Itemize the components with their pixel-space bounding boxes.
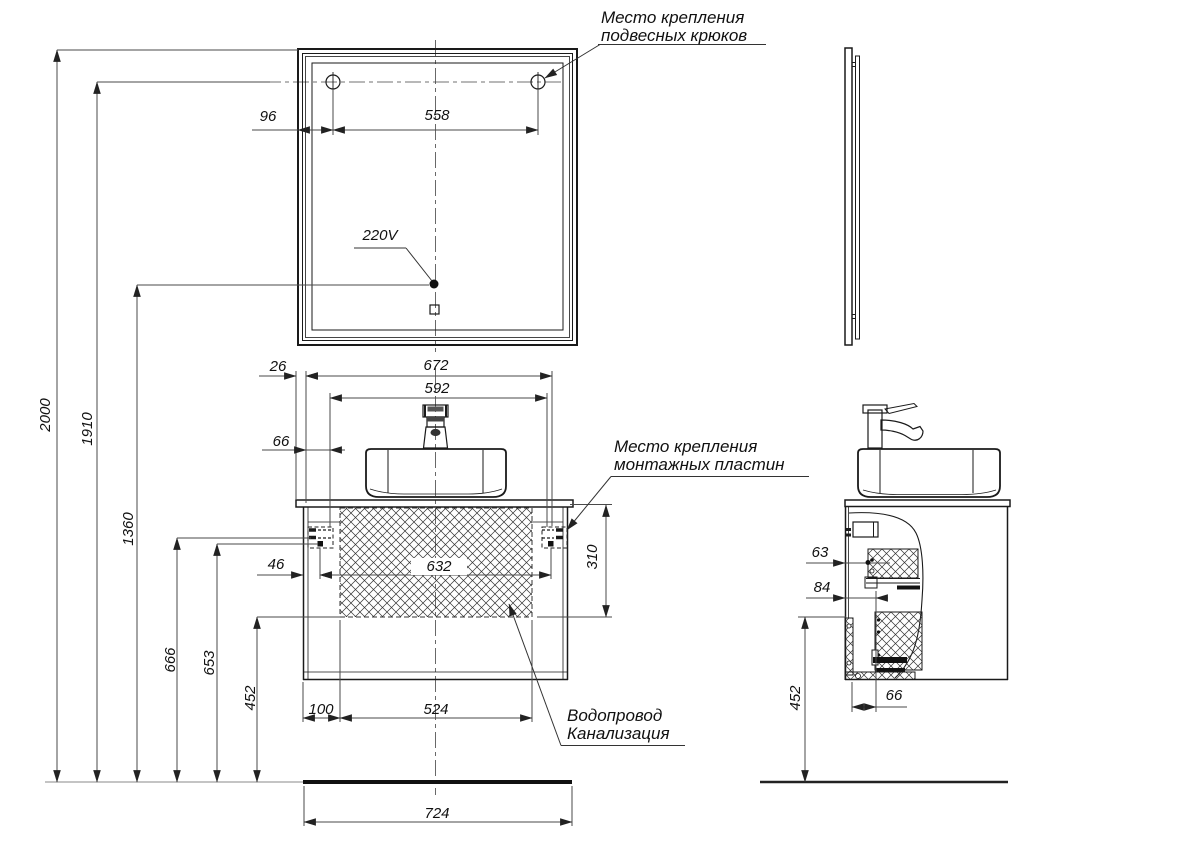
side-lower-rail-section xyxy=(845,612,922,680)
dim-plate-screw-height: 653 xyxy=(201,628,219,698)
dim-cutout-width: 524 xyxy=(406,701,466,718)
touch-switch-icon xyxy=(430,305,439,314)
dim-side-rail-depth: 84 xyxy=(802,579,842,596)
dim-cutout-left-offset: 100 xyxy=(299,701,343,718)
plates-mounting-label-line2: монтажных пластин xyxy=(614,456,785,474)
dim-plate-screw-spacing: 632 xyxy=(411,558,467,575)
dim-side-plate-depth: 63 xyxy=(800,544,840,561)
side-upper-plate-section xyxy=(865,549,920,590)
cabinet-side-view xyxy=(845,404,1010,681)
power-voltage-label: 220V xyxy=(350,227,410,244)
mirror-front-view xyxy=(298,49,577,345)
plates-mounting-label: Место крепления монтажных пластин xyxy=(614,438,785,474)
dim-bottom-clearance-side: 452 xyxy=(787,663,805,733)
utility-label-line2: Канализация xyxy=(567,725,670,743)
hooks-mounting-label: Место крепления подвесных крюков xyxy=(601,9,747,45)
countertop-front xyxy=(296,500,573,507)
dim-cutout-height: 310 xyxy=(584,522,602,592)
sink-front xyxy=(366,449,506,497)
mounting-plate-left xyxy=(308,527,333,548)
dim-sink-mount-span: 592 xyxy=(407,380,467,397)
cabinet-front-view xyxy=(296,405,573,680)
dim-cabinet-width: 724 xyxy=(407,805,467,822)
faucet-side xyxy=(863,404,923,449)
plates-mounting-label-line1: Место крепления xyxy=(614,438,785,456)
utility-label-line1: Водопровод xyxy=(567,707,670,725)
dim-cabinet-mount-span: 672 xyxy=(406,357,466,374)
dim-hook-height: 1910 xyxy=(79,394,97,464)
dim-total-height: 2000 xyxy=(37,380,55,450)
power-outlet-dot xyxy=(430,280,439,289)
dim-plate-top-height: 666 xyxy=(162,625,180,695)
utility-label: Водопровод Канализация xyxy=(567,707,670,743)
centerlines xyxy=(265,40,562,795)
dim-socket-height: 1360 xyxy=(120,494,138,564)
countertop-side xyxy=(845,500,1010,507)
installation-drawing: 96 558 220V 2000 1910 1360 666 653 452 3… xyxy=(0,0,1200,848)
faucet-front xyxy=(423,405,448,448)
dim-countertop-overhang: 26 xyxy=(258,358,298,375)
dim-plate-edge-offset: 46 xyxy=(256,556,296,573)
dim-plate-front-offset: 66 xyxy=(261,433,301,450)
dim-mirror-hook-spacing: 558 xyxy=(407,107,467,124)
sink-side xyxy=(858,449,1000,497)
dim-mirror-hook-left-offset: 96 xyxy=(248,108,288,125)
dim-bottom-clearance-front: 452 xyxy=(242,663,260,733)
dim-side-bottom-rail-depth: 66 xyxy=(874,687,914,704)
hooks-mounting-label-line2: подвесных крюков xyxy=(601,27,747,45)
hooks-mounting-label-line1: Место крепления xyxy=(601,9,747,27)
mirror-side-view xyxy=(845,48,860,345)
side-plate-ref-dot xyxy=(866,560,871,565)
side-bracket-top xyxy=(845,522,878,537)
